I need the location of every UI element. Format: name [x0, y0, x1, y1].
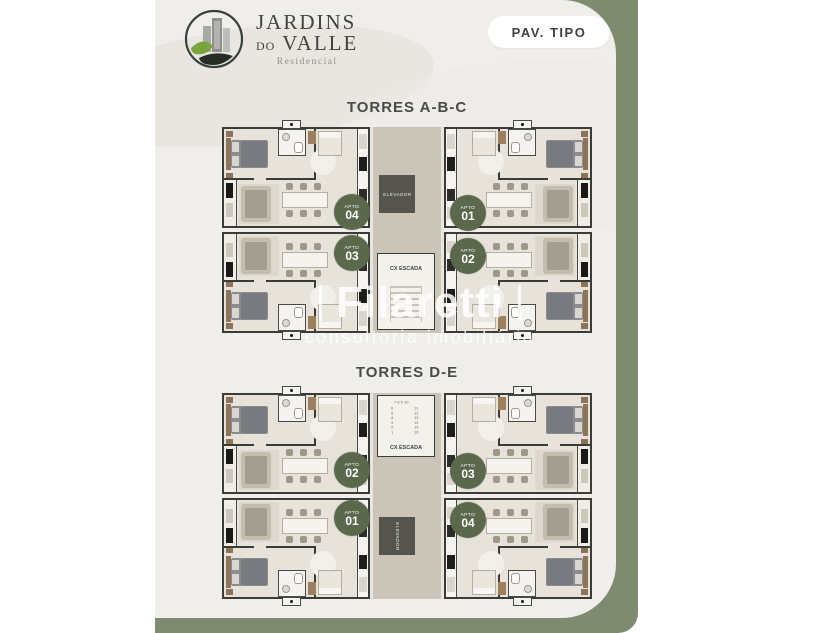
- elevator-box: ELEVADOR: [379, 175, 415, 213]
- brand-tagline: Residencial: [256, 57, 358, 67]
- brand-logo: JARDINS DO VALLE Residencial: [181, 6, 358, 72]
- apto-badge: APTO 02: [450, 238, 486, 274]
- apto-badge: APTO 01: [334, 500, 370, 536]
- brand-name: JARDINS DO VALLE Residencial: [256, 12, 358, 67]
- floor-plan-torres-de: 7 8 9 10 6 5 4 3 2 1 11 12 13 14 15 16 C…: [222, 393, 592, 599]
- stairwell-box: CX ESCADA: [377, 253, 435, 330]
- flyer-card: JARDINS DO VALLE Residencial PAV. TIPO T…: [155, 0, 616, 618]
- apto-badge: APTO 03: [450, 453, 486, 489]
- floor-plan-torres-abc: ELEVADOR CX ESCADA APTO 04 APTO 03 APTO …: [222, 127, 592, 333]
- apto-badge: APTO 03: [334, 235, 370, 271]
- apto-badge: APTO 02: [334, 452, 370, 488]
- flyer: JARDINS DO VALLE Residencial PAV. TIPO T…: [0, 0, 829, 633]
- building-core: ELEVADOR CX ESCADA: [370, 127, 444, 333]
- apto-badge: APTO 04: [450, 502, 486, 538]
- stair-steps: [390, 286, 422, 322]
- elevator-box: ELEVADOR: [379, 517, 415, 555]
- apto-badge: APTO 01: [450, 195, 486, 231]
- buildings-leaf-logo-icon: [181, 6, 247, 72]
- pav-tipo-badge: PAV. TIPO: [488, 16, 610, 48]
- apto-badge: APTO 04: [334, 194, 370, 230]
- building-core: 7 8 9 10 6 5 4 3 2 1 11 12 13 14 15 16 C…: [370, 393, 444, 599]
- brand-line2: DO VALLE: [256, 33, 358, 54]
- plan-title-torres-abc: TORRES A-B-C: [222, 99, 592, 116]
- stairwell-box: 7 8 9 10 6 5 4 3 2 1 11 12 13 14 15 16 C…: [377, 395, 435, 457]
- brand-line1: JARDINS: [256, 12, 358, 33]
- plan-title-torres-de: TORRES D-E: [222, 364, 592, 381]
